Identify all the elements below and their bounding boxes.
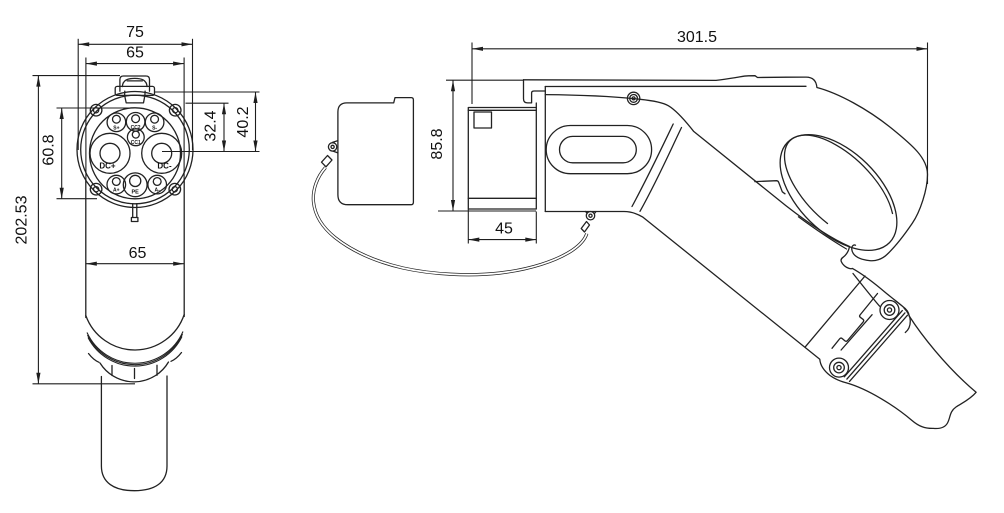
svg-text:S-: S- — [152, 126, 157, 132]
svg-text:301.5: 301.5 — [677, 29, 717, 46]
svg-text:S+: S+ — [113, 126, 119, 132]
svg-text:DC+: DC+ — [99, 162, 116, 171]
svg-text:CC1: CC1 — [131, 140, 141, 146]
svg-text:45: 45 — [495, 221, 513, 238]
svg-text:75: 75 — [126, 24, 144, 41]
svg-text:202.53: 202.53 — [14, 195, 31, 244]
svg-text:60.8: 60.8 — [41, 134, 58, 165]
svg-text:65: 65 — [129, 245, 147, 262]
svg-text:DC-: DC- — [157, 162, 172, 171]
svg-text:A-: A- — [155, 188, 161, 194]
svg-text:32.4: 32.4 — [203, 110, 220, 141]
svg-text:85.8: 85.8 — [429, 128, 446, 159]
svg-text:A+: A+ — [113, 188, 120, 194]
svg-text:PE: PE — [132, 190, 140, 196]
svg-text:40.2: 40.2 — [235, 106, 252, 137]
svg-text:65: 65 — [126, 45, 144, 62]
